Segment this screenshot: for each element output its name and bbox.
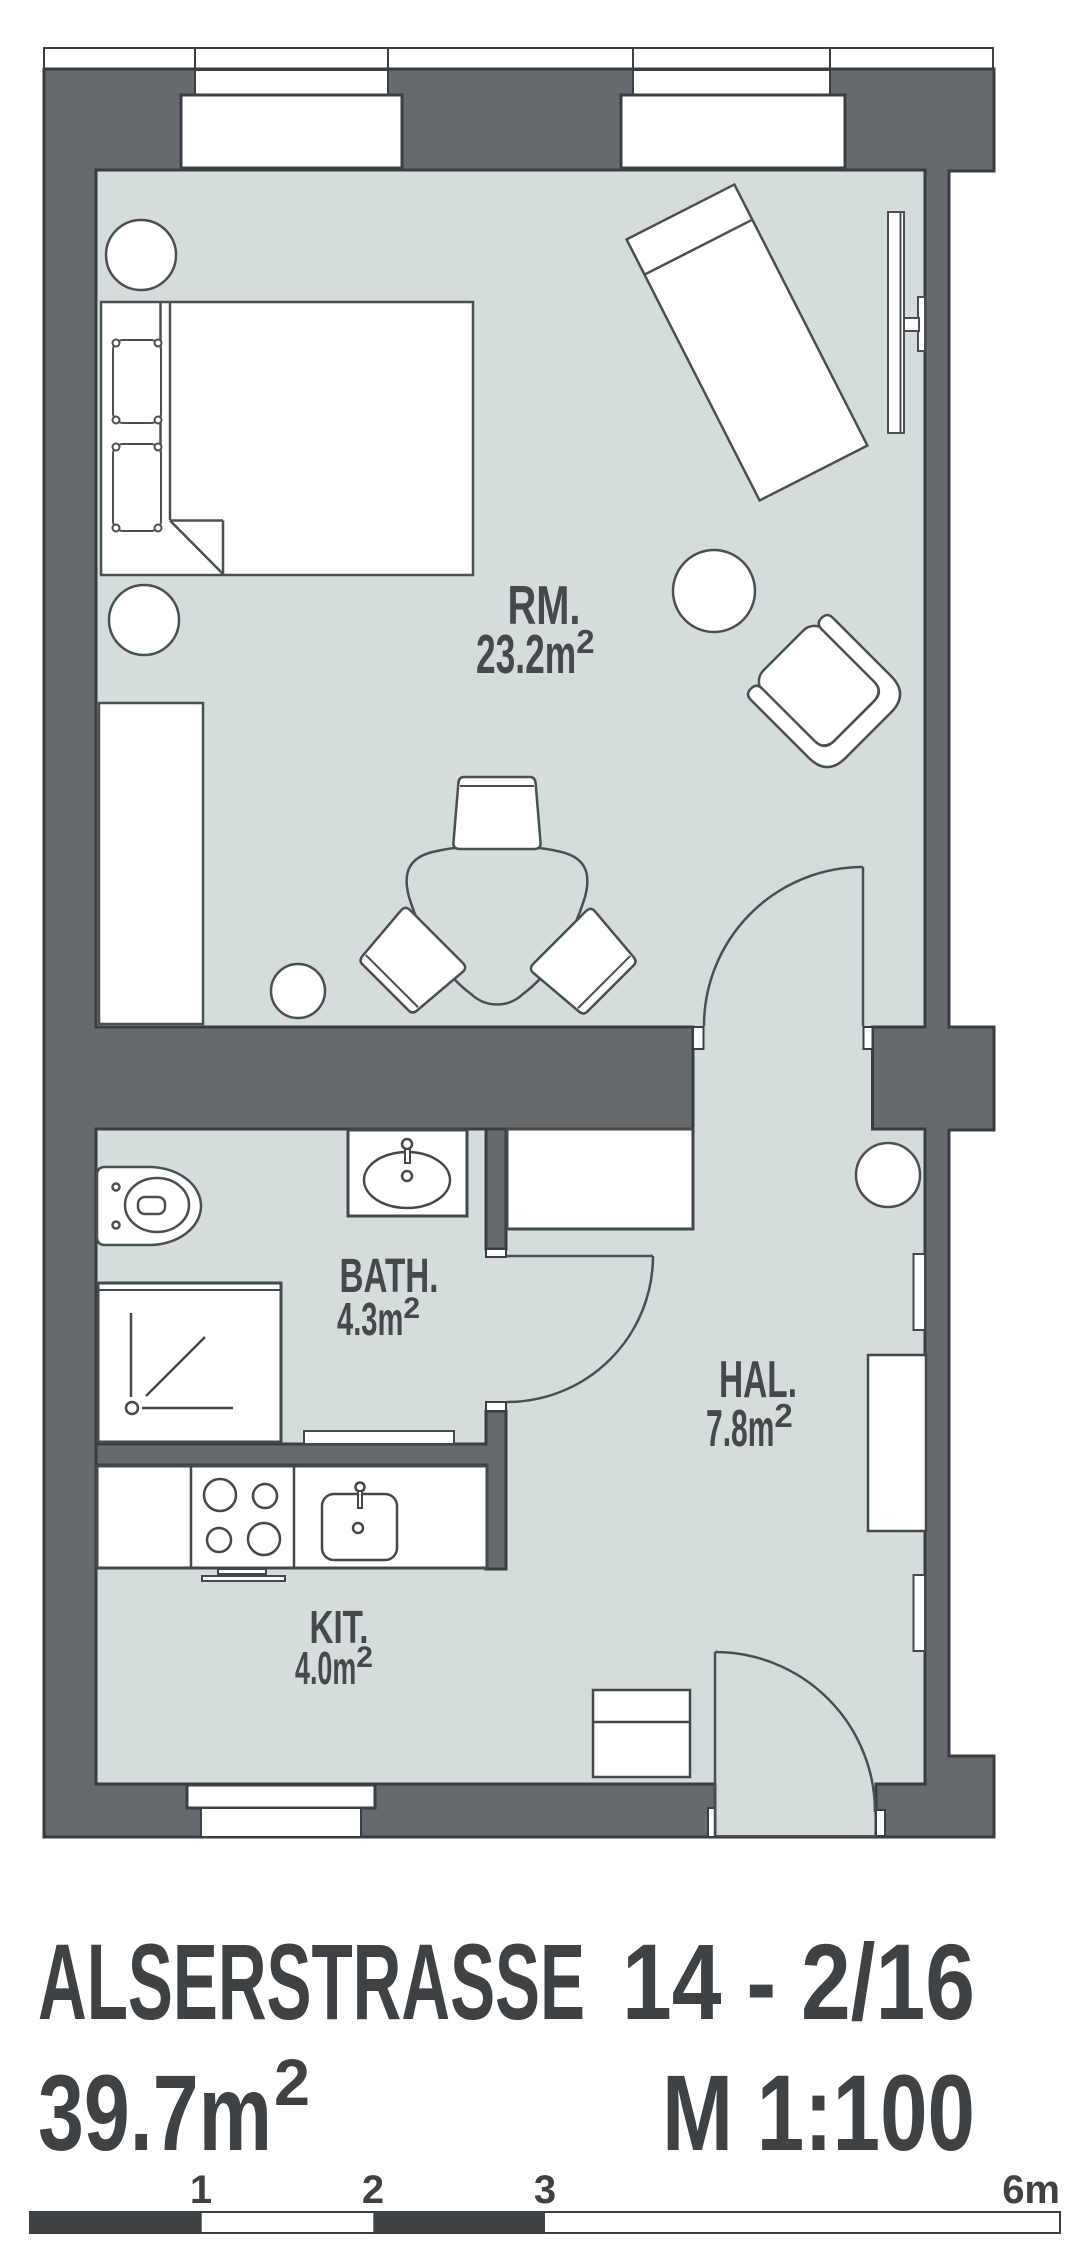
svg-text:3: 3	[534, 2168, 556, 2212]
svg-text:ALSERSTRASSE: ALSERSTRASSE	[38, 1921, 585, 2042]
svg-text:2: 2	[362, 2168, 384, 2212]
svg-text:14 - 2/16: 14 - 2/16	[622, 1921, 975, 2042]
svg-text:39.7m: 39.7m	[38, 2052, 272, 2173]
svg-text:2: 2	[274, 2045, 310, 2119]
svg-text:1: 1	[190, 2168, 212, 2212]
svg-text:M 1:100: M 1:100	[662, 2052, 975, 2173]
svg-text:6m: 6m	[1002, 2168, 1060, 2212]
